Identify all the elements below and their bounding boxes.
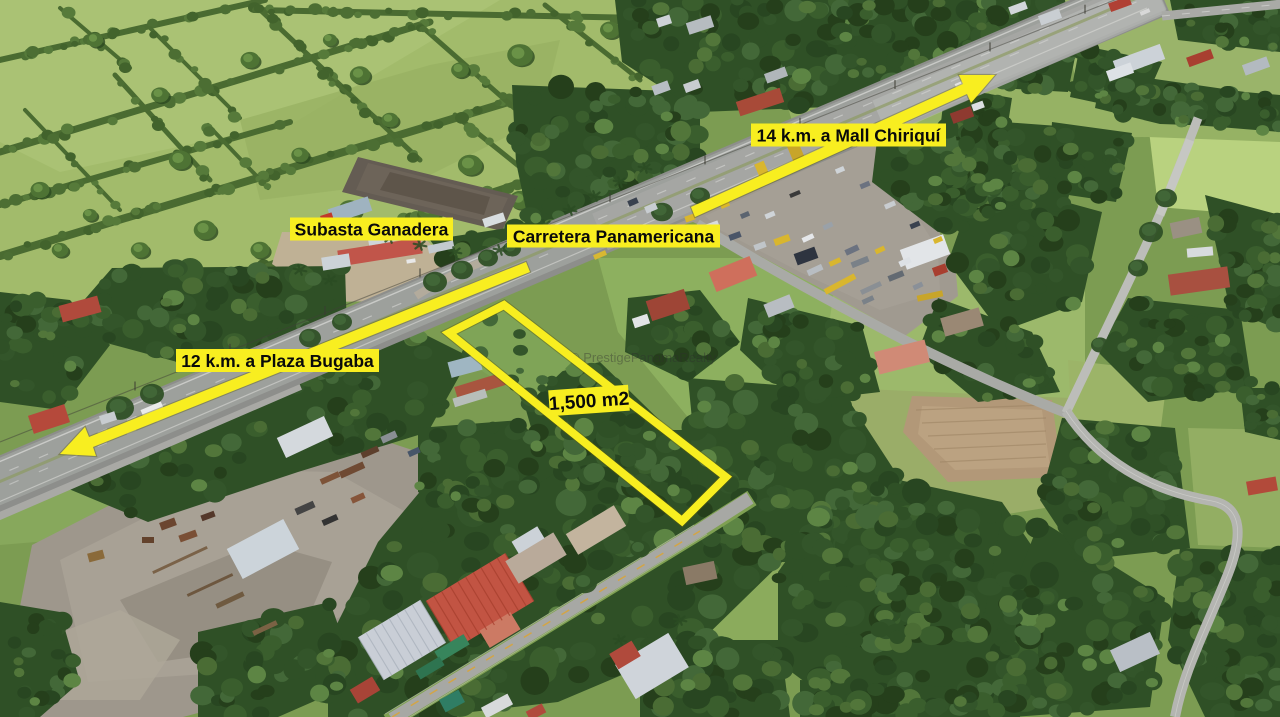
svg-text:Subasta Ganadera: Subasta Ganadera: [295, 219, 449, 239]
svg-text:12 k.m. a Plaza Bugaba: 12 k.m. a Plaza Bugaba: [181, 351, 374, 371]
svg-text:Carretera Panamericana: Carretera Panamericana: [513, 226, 715, 246]
svg-text:14 k.m. a Mall Chiriquí: 14 k.m. a Mall Chiriquí: [757, 125, 942, 145]
svg-text:© PrestigePanamaRealty: © PrestigePanamaRealty: [570, 350, 717, 365]
